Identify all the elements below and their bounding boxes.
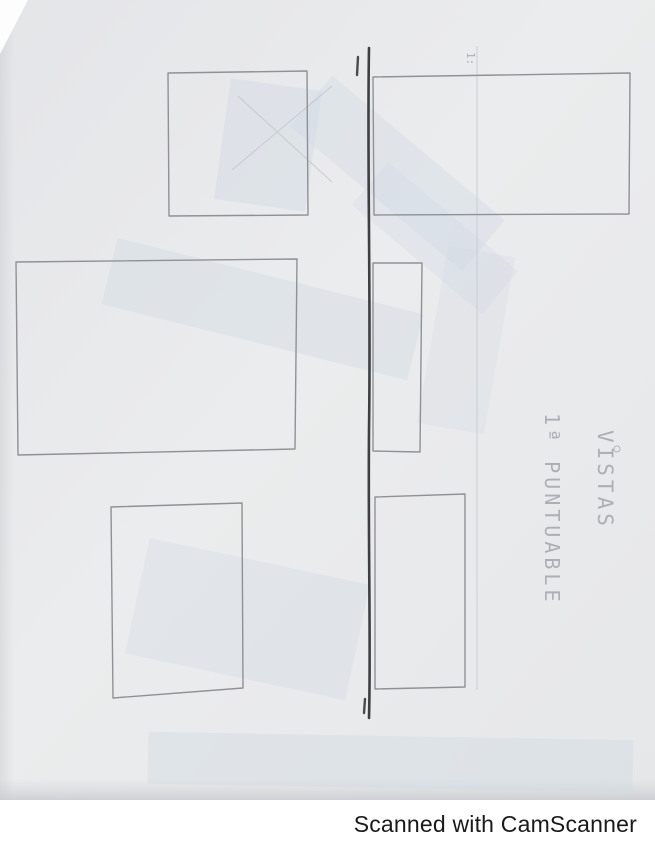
scanned-document-page: 1: VISTAS 1ª PUNTUABLE Scanned with CamS… [0,0,655,848]
scanner-footer: Scanned with CamScanner [0,800,655,848]
scanner-credit-text: Scanned with CamScanner [354,811,637,838]
divider-bottom-tick [364,699,365,713]
vistas-label: VISTAS [593,430,617,530]
paper-left-shadow [0,0,14,800]
scan-canvas: 1: VISTAS 1ª PUNTUABLE [0,0,655,800]
bleed-blob-top-left [214,78,322,212]
bleed-band-bottom [148,732,634,792]
divider-stroke [368,48,369,718]
corner-annotation: 1: [464,52,477,65]
divider-top-tick [357,57,358,75]
puntuable-label: 1ª PUNTUABLE [540,413,564,606]
